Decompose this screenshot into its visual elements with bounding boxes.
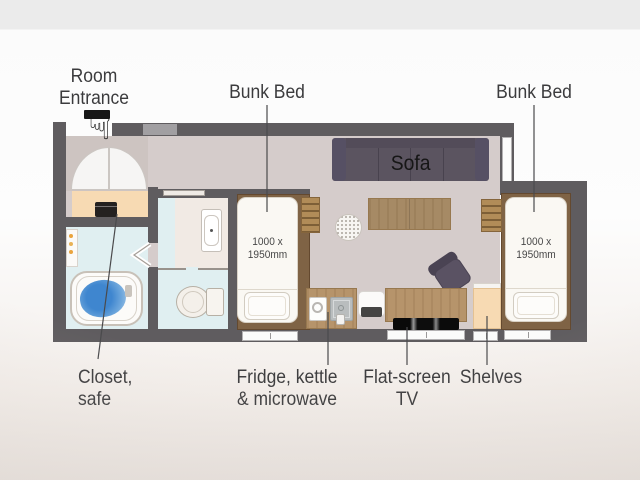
- toilet-seat: [182, 291, 204, 313]
- door-track-toilet-room: [163, 190, 205, 196]
- amenity-bottle-3: [69, 250, 73, 254]
- kitchen-sink-drain: [338, 305, 344, 311]
- toilet-divider-gap: [186, 267, 198, 271]
- safe-lid-line: [95, 206, 117, 207]
- wall-left: [53, 122, 66, 342]
- label-shelves: Shelves: [441, 367, 541, 389]
- tv-cabinet: [385, 288, 467, 322]
- right-bed-blanket-line: [506, 288, 566, 289]
- toilet-tank: [206, 288, 224, 316]
- window-below-shelves: [473, 331, 498, 341]
- safe-icon: [95, 202, 117, 217]
- window-below-left-bed: [242, 331, 298, 341]
- label-fridge-kettle-microwave: Fridge, kettle & microwave: [226, 367, 348, 410]
- folding-door-icon: [126, 240, 154, 270]
- window-below-tv: [387, 330, 465, 340]
- wall-top-left-stub: [53, 123, 63, 136]
- sofa-label: Sofa: [332, 152, 489, 176]
- left-bed-ladder: [301, 197, 320, 233]
- right-bed-pillow: [513, 292, 559, 319]
- window-right-wall: [502, 137, 512, 182]
- label-room-entrance: Room Entrance: [34, 66, 154, 109]
- sink-drain: [210, 229, 213, 232]
- wall-bath-right-upper: [148, 187, 158, 243]
- wall-alcove-right: [571, 181, 587, 342]
- left-bed-pillow: [244, 292, 290, 320]
- bathtub-faucet: [125, 285, 132, 297]
- shelves-unit: [473, 288, 501, 329]
- amenity-bottle-1: [69, 234, 73, 238]
- flat-screen-tv-icon: [393, 318, 459, 330]
- kitchen-faucet: [336, 314, 345, 325]
- right-bed-ladder: [481, 199, 502, 232]
- right-bed-dimensions: 1000 x1950mm: [505, 236, 567, 262]
- label-closet-safe: Closet, safe: [78, 367, 198, 410]
- wall-top-vent: [143, 124, 177, 135]
- label-bunk-bed-left: Bunk Bed: [217, 82, 317, 104]
- floorplan-canvas: 1000 x1950mm Sofa 1000 x1950mm: [0, 0, 640, 480]
- desk-stool-bar: [361, 307, 382, 317]
- wall-bath-right-lower: [148, 267, 158, 329]
- pouf-stool: [335, 214, 362, 241]
- left-bed-blanket-line: [238, 289, 297, 290]
- coffee-table-seam: [409, 199, 410, 229]
- wall-below-closet: [66, 217, 148, 227]
- window-below-right-bed: [504, 330, 551, 340]
- left-bed-dimensions: 1000 x1950mm: [237, 236, 298, 262]
- label-bunk-bed-right: Bunk Bed: [484, 82, 584, 104]
- microwave-dial: [312, 302, 323, 313]
- amenity-bottle-2: [69, 242, 73, 246]
- entrance-hand-cuff: [84, 110, 110, 119]
- sofa-backrest: [346, 138, 475, 148]
